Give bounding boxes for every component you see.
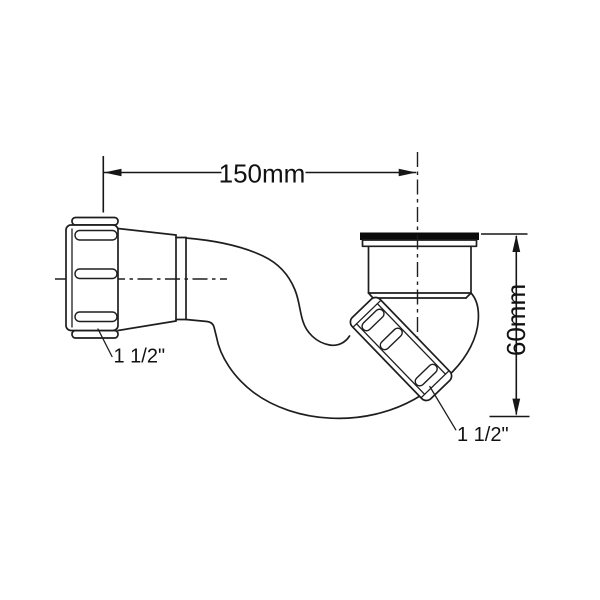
cup-flange: [363, 240, 477, 246]
inlet-nut-flute-slot: [75, 312, 117, 322]
inlet-nut-bottom-chamfer: [72, 331, 118, 339]
inlet-nut-flute-slot: [75, 231, 117, 241]
pipe-inner-s-curve: [186, 238, 350, 345]
dimension-width-150mm: 150mm: [103, 156, 416, 213]
leader-line-outlet: [430, 387, 456, 430]
inlet-size-text: 1 1/2": [114, 346, 166, 368]
seal-washer: [360, 233, 479, 241]
inlet-cup: [360, 233, 479, 299]
arrowhead-left: [104, 169, 122, 177]
inlet-cone-top-edge: [118, 229, 176, 236]
inlet-nut-flute-slot: [75, 269, 117, 279]
inlet-nut: [66, 218, 118, 339]
dimension-width-text: 150mm: [219, 159, 306, 189]
dimension-height-60mm: 60mm: [481, 234, 531, 417]
bath-trap-diagram: 150mm 60mm 1 1/2" 1 1/2": [0, 0, 600, 600]
arrowhead-up: [512, 235, 520, 252]
swivel-nut: [348, 295, 455, 403]
diagram-canvas: 150mm 60mm 1 1/2" 1 1/2": [0, 0, 600, 600]
swivel-nut-body: [348, 295, 455, 403]
inlet-nut-top-chamfer: [72, 218, 118, 226]
outlet-size-text: 1 1/2": [457, 424, 509, 446]
dimension-height-text: 60mm: [501, 284, 531, 356]
arrowhead-right: [399, 169, 417, 177]
arrowhead-down: [512, 399, 520, 416]
inlet-cone-bottom-edge: [118, 321, 176, 331]
